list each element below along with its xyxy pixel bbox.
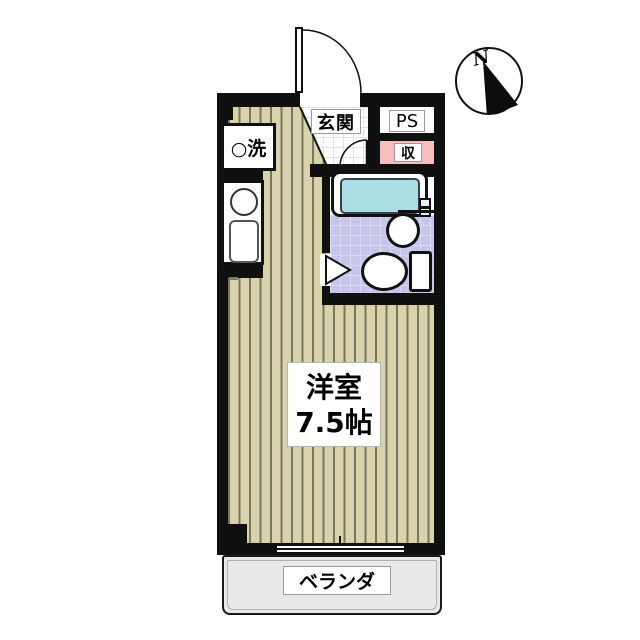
washing-machine-space: ○洗 — [221, 123, 276, 171]
main-room-label: 洋室 7.5帖 — [287, 362, 381, 447]
window-center-tick — [339, 536, 341, 544]
kitchen-sink-icon — [229, 220, 259, 263]
entrance-label-text: 玄関 — [317, 109, 355, 135]
pipe-space-label-text: PS — [396, 111, 418, 132]
window-sash-line — [277, 548, 404, 550]
veranda-label-text: ベランダ — [299, 567, 375, 594]
entrance-door-leaf — [295, 27, 303, 93]
toilet-tank-icon — [409, 251, 432, 292]
wall — [217, 524, 247, 555]
wall — [220, 170, 263, 180]
main-room-name: 洋室 — [306, 370, 362, 405]
kitchen-faucet-icon — [229, 277, 238, 280]
wall — [322, 177, 330, 253]
bathroom-sink-icon — [386, 213, 420, 248]
compass-icon: N — [455, 47, 523, 115]
wall — [376, 133, 434, 141]
wall — [322, 293, 445, 305]
floor-plan: ○洗 玄関 PS 収 洋室 7.5帖 ベランダ — [0, 0, 640, 640]
wall — [220, 265, 263, 278]
storage-label: 収 — [394, 143, 422, 162]
kitchen-unit — [221, 180, 264, 265]
bathroom-door-opening — [320, 254, 331, 286]
veranda-label: ベランダ — [283, 566, 391, 595]
entrance-door-arc-icon — [303, 30, 361, 93]
balcony-window — [277, 544, 404, 554]
toilet-bowl-icon — [361, 252, 408, 291]
washer-label: ○洗 — [231, 134, 267, 161]
burner-icon — [230, 188, 258, 216]
entrance-label: 玄関 — [311, 109, 361, 134]
storage-label-text: 収 — [401, 143, 415, 163]
wall — [434, 93, 445, 555]
pipe-space-label: PS — [389, 110, 425, 132]
main-room-size: 7.5帖 — [295, 405, 373, 440]
bathtub-water — [340, 178, 420, 214]
